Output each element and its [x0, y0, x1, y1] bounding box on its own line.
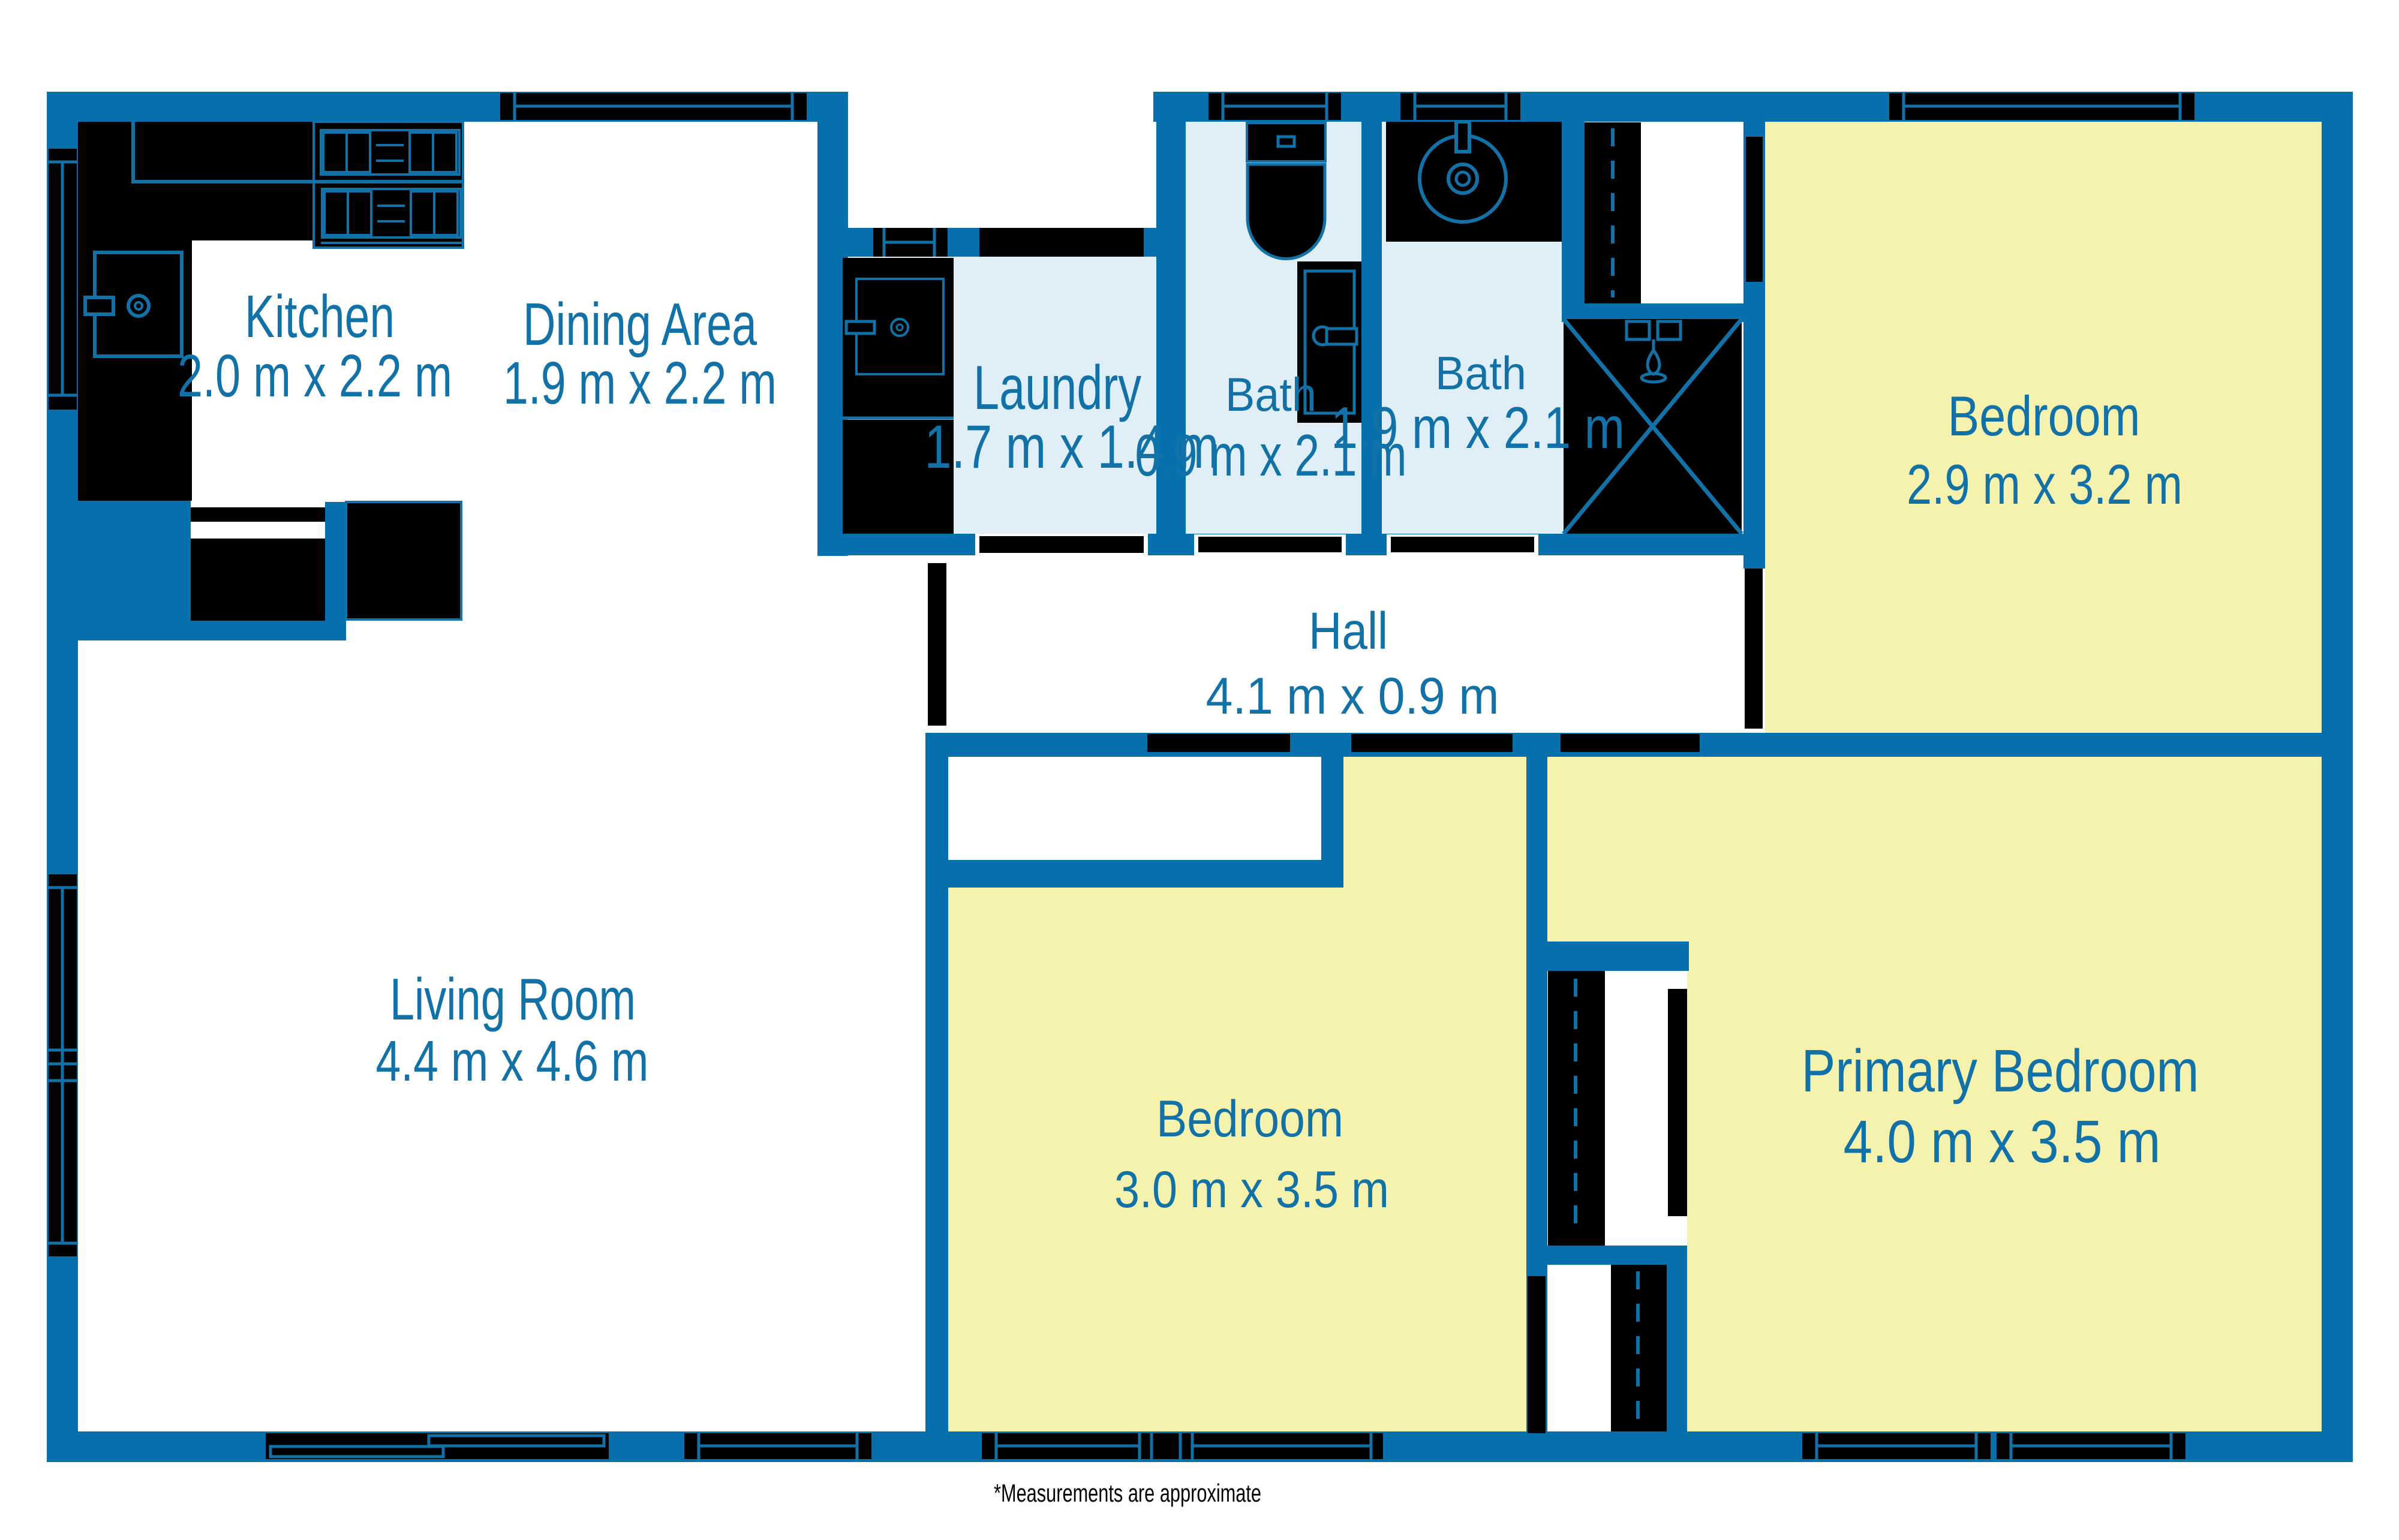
- svg-text:3.0 m x 3.5 m: 3.0 m x 3.5 m: [1114, 1161, 1389, 1219]
- svg-text:*Measurements are approximate: *Measurements are approximate: [994, 1479, 1261, 1507]
- svg-text:Kitchen: Kitchen: [245, 283, 395, 350]
- svg-text:Bath: Bath: [1225, 368, 1316, 421]
- svg-text:Dining Area: Dining Area: [523, 291, 757, 358]
- svg-text:Primary Bedroom: Primary Bedroom: [1802, 1037, 2199, 1105]
- svg-text:Bedroom: Bedroom: [1156, 1090, 1343, 1148]
- svg-text:4.0 m x 3.5 m: 4.0 m x 3.5 m: [1844, 1108, 2161, 1175]
- svg-text:Living Room: Living Room: [390, 966, 636, 1032]
- svg-text:2.9 m x 3.2 m: 2.9 m x 3.2 m: [1907, 453, 2182, 516]
- svg-text:Bedroom: Bedroom: [1948, 384, 2141, 447]
- svg-text:1.9 m x 2.1 m: 1.9 m x 2.1 m: [1331, 395, 1625, 461]
- svg-text:2.0 m x 2.2 m: 2.0 m x 2.2 m: [178, 342, 452, 410]
- svg-text:Hall: Hall: [1309, 602, 1388, 660]
- svg-text:4.4 m x 4.6 m: 4.4 m x 4.6 m: [376, 1029, 649, 1093]
- svg-text:Bath: Bath: [1435, 347, 1526, 399]
- svg-text:4.1 m x 0.9 m: 4.1 m x 0.9 m: [1206, 667, 1499, 725]
- svg-text:1.9 m x 2.2 m: 1.9 m x 2.2 m: [503, 350, 777, 417]
